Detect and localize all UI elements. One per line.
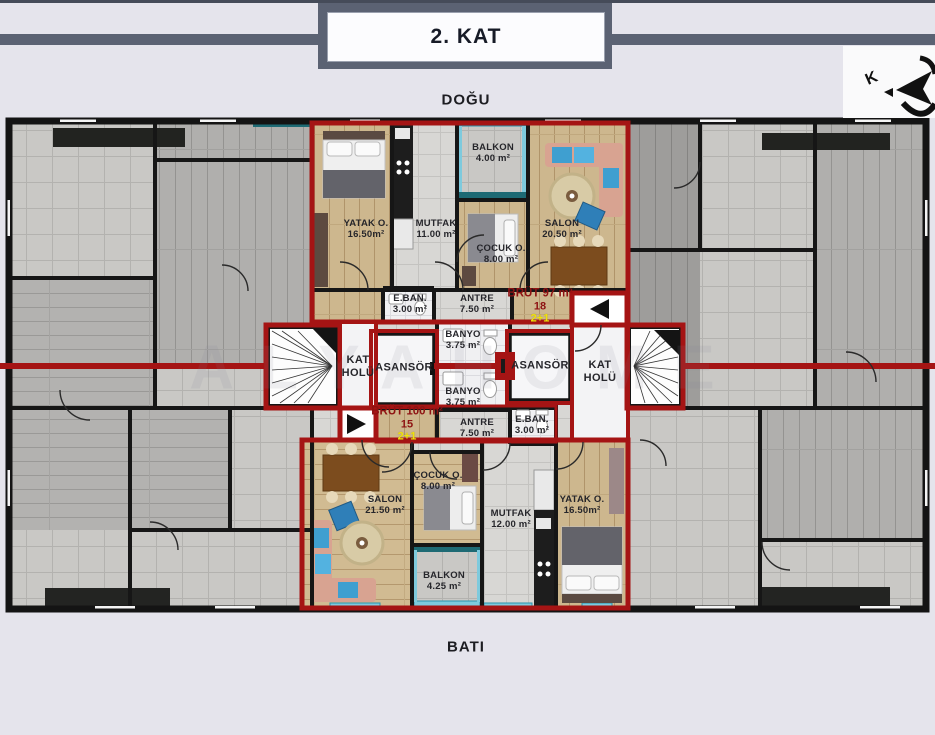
compass-icon — [843, 46, 935, 118]
room-label-salon-top: SALON 20.50 m² — [542, 218, 582, 240]
label-asansor-left: ASANSÖR — [375, 362, 433, 375]
label-banyo-upper: BANYO 3.75 m² — [445, 329, 480, 351]
room-label-mutfak-bottom: MUTFAK 12.00 m² — [491, 508, 532, 530]
label-asansor-right: ASANSÖR — [511, 360, 569, 373]
stairs-right — [630, 328, 680, 405]
room-label-balkon-top: BALKON 4.00 m² — [472, 142, 514, 164]
room-label-balkon-bottom: BALKON 4.25 m² — [423, 570, 465, 592]
stairs-left — [269, 328, 337, 405]
floor-plan-svg — [0, 0, 935, 735]
room-label-yatak-bottom: YATAK O. 16.50m² — [560, 494, 605, 516]
unit-info-top: BRÜT 97 m² 18 2+1 — [507, 287, 572, 325]
room-label-cocuk-top: ÇOCUK O. 8.00 m² — [476, 243, 525, 265]
room-label-salon-bottom: SALON 21.50 m² — [365, 494, 405, 516]
room-label-eban-bottom: E.BAN. 3.00 m² — [515, 414, 549, 436]
room-label-antre-bottom: ANTRE 7.50 m² — [460, 417, 494, 439]
label-banyo-lower: BANYO 3.75 m² — [445, 386, 480, 408]
room-label-cocuk-bottom: ÇOCUK O. 8.00 m² — [413, 470, 462, 492]
room-label-antre-top: ANTRE 7.50 m² — [460, 293, 494, 315]
unit-info-bottom: BRÜT 100 m² 15 2+1 — [371, 405, 443, 443]
label-kat-holu-right: KAT HOLÜ — [584, 359, 617, 385]
room-label-yatak-top: YATAK O. 16.50m² — [344, 218, 389, 240]
floor-plan-page: 2. KAT DOĞU BATI — [0, 0, 935, 735]
room-label-mutfak-top: MUTFAK 11.00 m² — [416, 218, 457, 240]
label-kat-holu-left: KAT HOLÜ — [342, 354, 375, 380]
room-label-eban-top: E.BAN. 3.00 m² — [393, 293, 427, 315]
